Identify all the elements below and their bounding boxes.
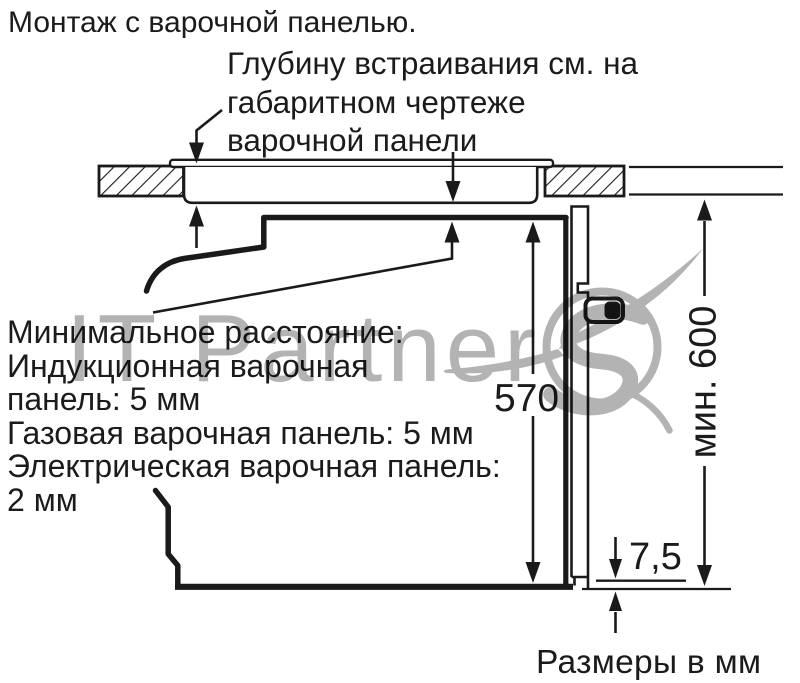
watermark-logo (0, 0, 800, 683)
watermark-logo-left-blade (444, 349, 564, 373)
installation-diagram-page: Монтаж с варочной панелью. Глубину встра… (0, 0, 800, 683)
watermark-layer: IT Partner (0, 0, 800, 683)
watermark-logo-lower-tail (627, 392, 670, 431)
